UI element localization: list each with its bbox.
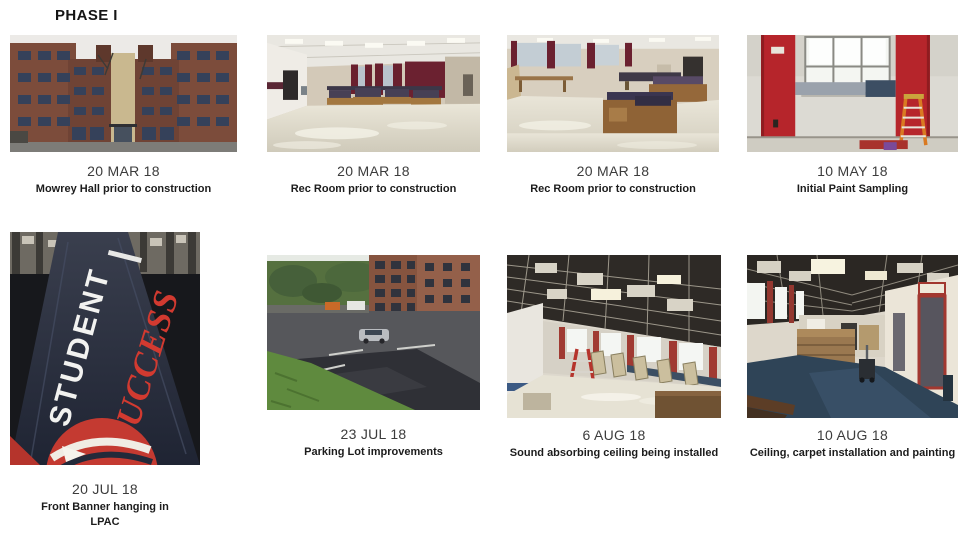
photo-caption: Rec Room prior to construction (267, 182, 480, 197)
photo-caption: Parking Lot improvements (267, 445, 480, 460)
photo-card-ceiling-install: 6 AUG 18 Sound absorbing ceiling being i… (507, 255, 721, 461)
photo-caption: Sound absorbing ceiling being installed (507, 446, 721, 461)
page-title: PHASE I (55, 7, 118, 24)
photo-caption: Initial Paint Sampling (747, 182, 958, 197)
photo-card-mowrey-hall: 20 MAR 18 Mowrey Hall prior to construct… (10, 35, 237, 197)
rec-room-photo-1 (267, 35, 480, 152)
photo-caption: Front Banner hanging in LPAC (30, 500, 180, 530)
photo-caption: Mowrey Hall prior to construction (10, 182, 237, 197)
photo-caption: Ceiling, carpet installation and paintin… (747, 446, 958, 461)
photo-card-parking-lot: 23 JUL 18 Parking Lot improvements (267, 255, 480, 460)
photo-date: 23 JUL 18 (267, 426, 480, 442)
photo-date: 20 MAR 18 (267, 163, 480, 179)
photo-date: 6 AUG 18 (507, 427, 721, 443)
rec-room-photo-2 (507, 35, 719, 152)
photo-date: 20 JUL 18 (10, 481, 200, 497)
photo-card-carpet-install: 10 AUG 18 Ceiling, carpet installation a… (747, 255, 958, 461)
presentation-slide: PHASE I (0, 0, 960, 540)
photo-card-paint-sampling: 10 MAY 18 Initial Paint Sampling (747, 35, 958, 197)
photo-card-rec-room-2: 20 MAR 18 Rec Room prior to construction (507, 35, 719, 197)
photo-date: 20 MAR 18 (10, 163, 237, 179)
photo-date: 10 AUG 18 (747, 427, 958, 443)
carpet-installation-photo (747, 255, 958, 418)
paint-sampling-photo (747, 35, 958, 152)
mowrey-hall-photo (10, 35, 237, 152)
photo-card-rec-room-1: 20 MAR 18 Rec Room prior to construction (267, 35, 480, 197)
photo-card-front-banner: STUDENT SUCCESS 20 JUL 18 Front Banner h… (10, 232, 200, 530)
parking-lot-photo (267, 255, 480, 410)
photo-date: 10 MAY 18 (747, 163, 958, 179)
photo-caption: Rec Room prior to construction (507, 182, 719, 197)
student-success-banner-photo: STUDENT SUCCESS (10, 232, 200, 465)
photo-date: 20 MAR 18 (507, 163, 719, 179)
ceiling-installation-photo (507, 255, 721, 418)
